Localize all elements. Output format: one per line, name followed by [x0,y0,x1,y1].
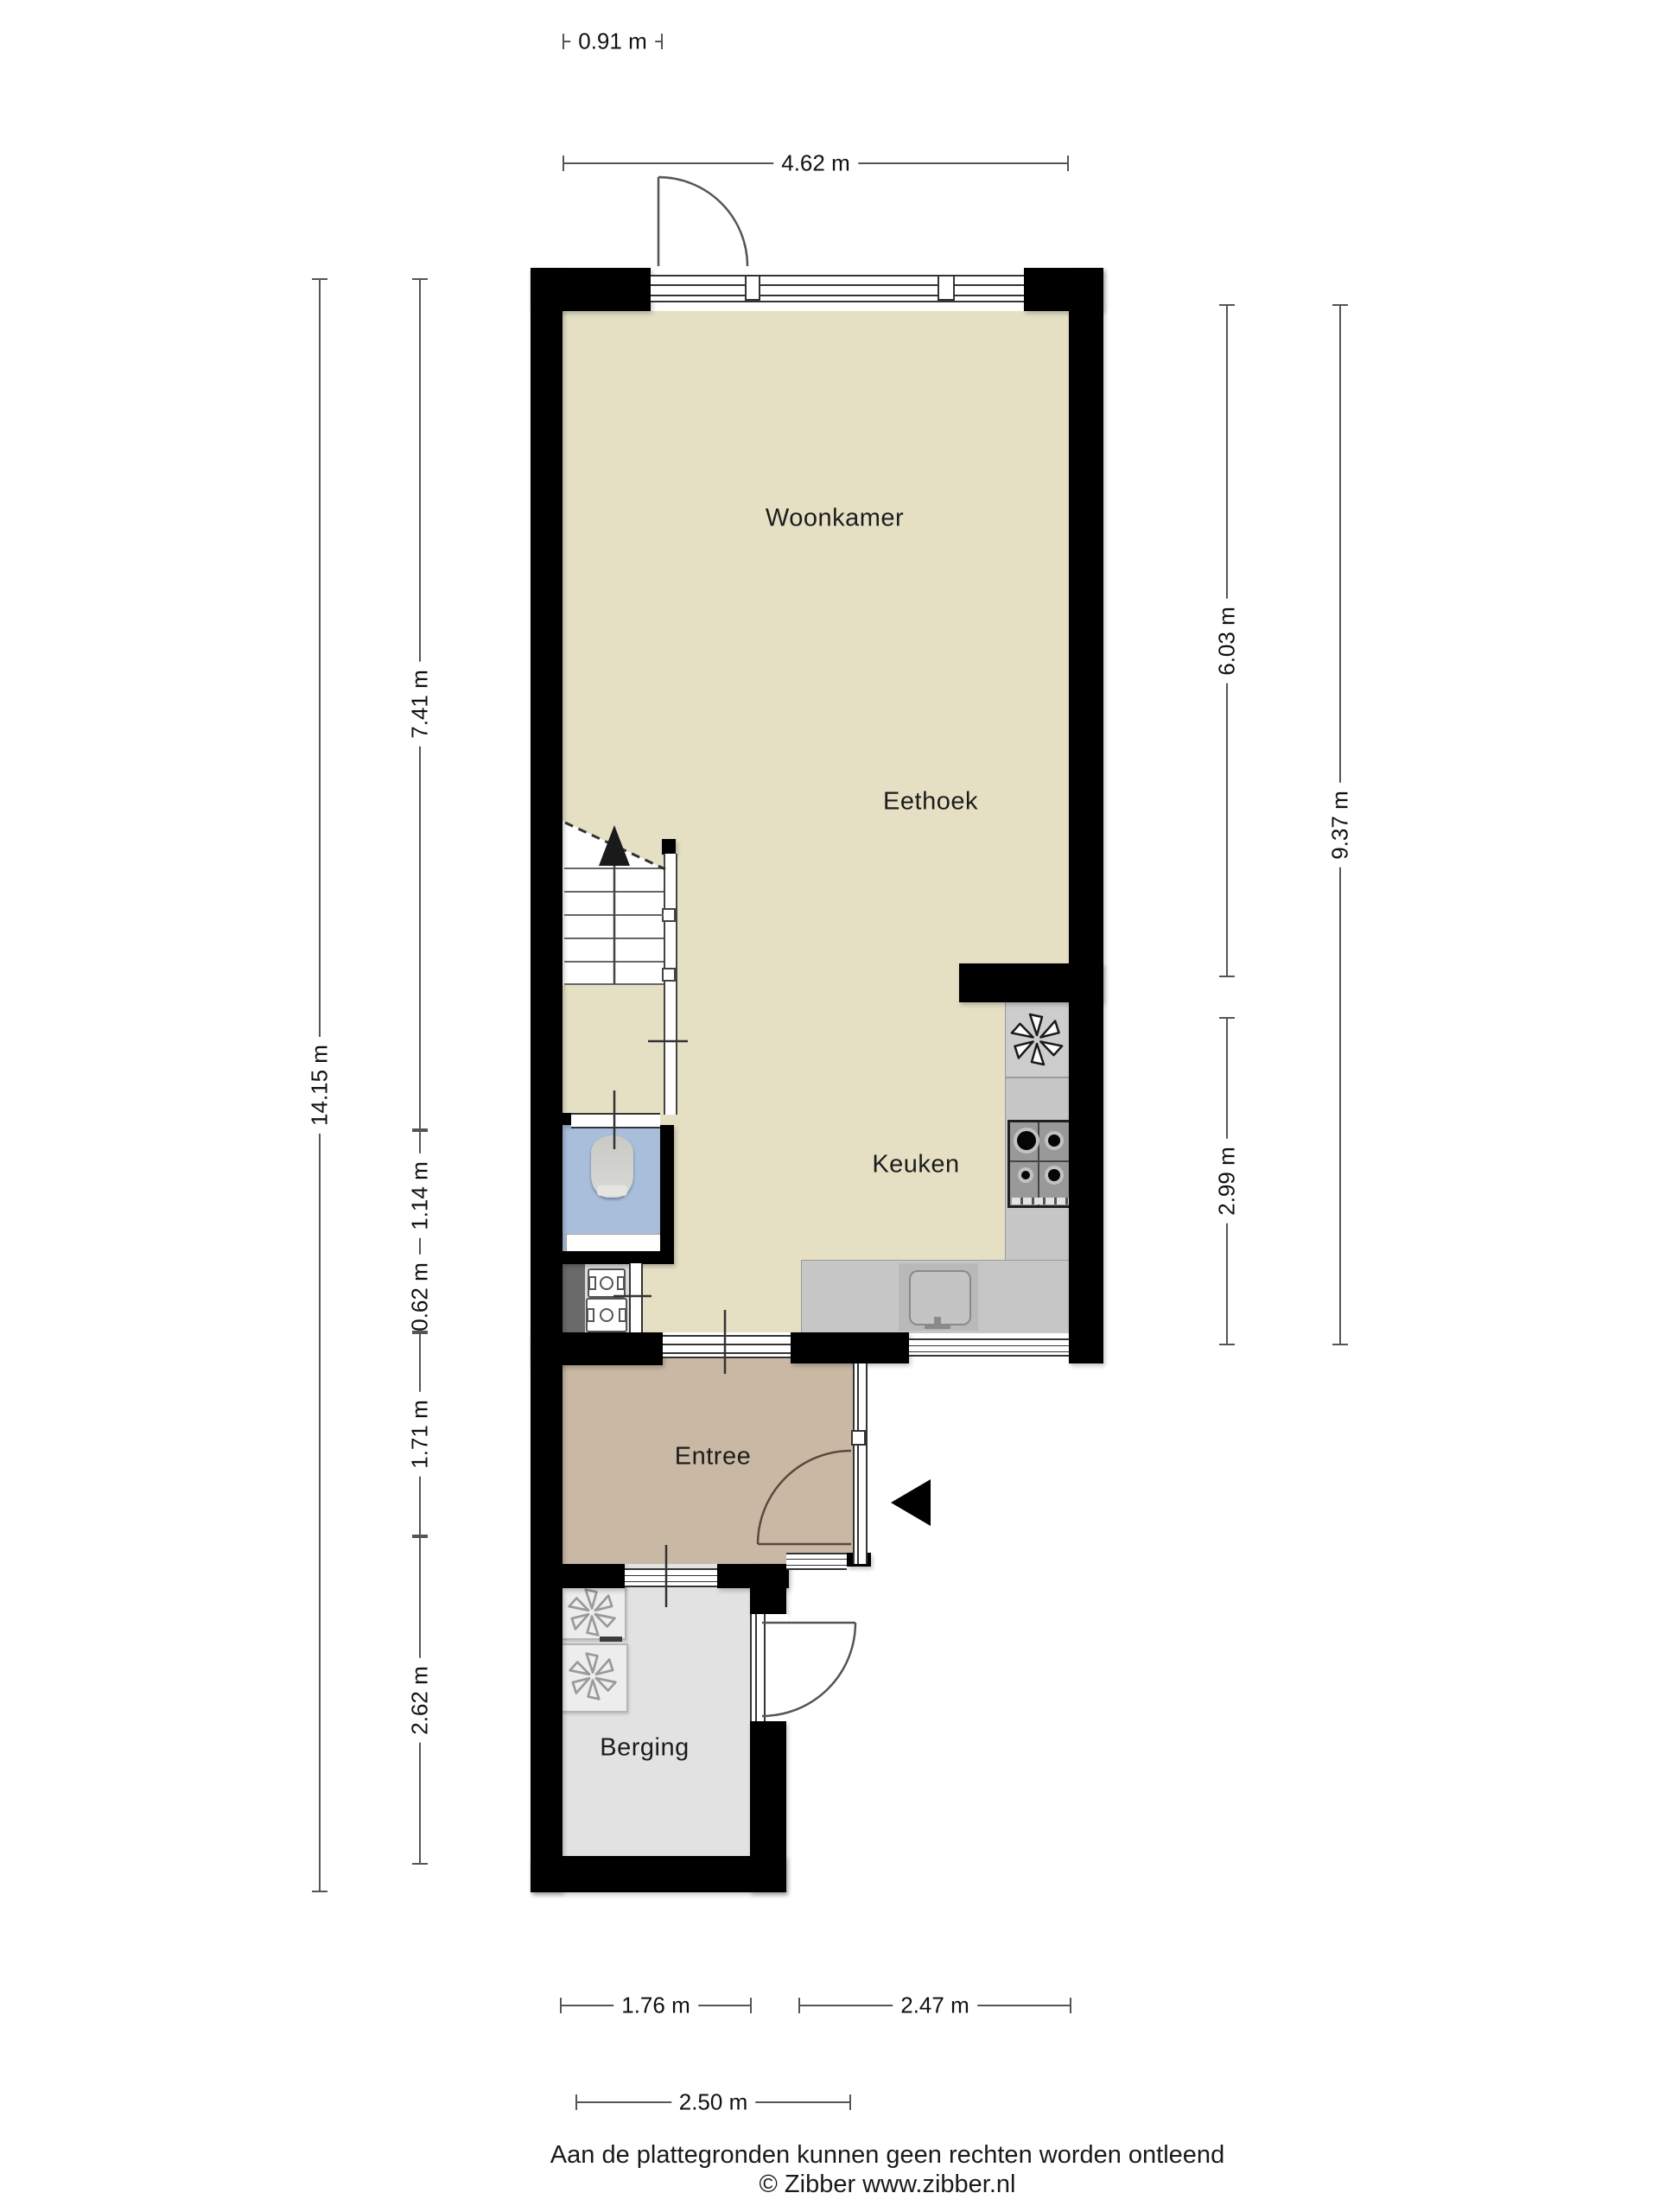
room-label-berging: Berging [600,1734,689,1763]
dim-top-width: 4.62 m [563,162,1069,164]
stairs-up-arrow-icon [599,825,630,866]
dim-label: 7.41 m [406,662,435,747]
door-swing-berging [762,1623,855,1716]
door-swing-entree [758,1451,851,1544]
dim-label: 9.37 m [1326,783,1355,868]
dim-bottom-berging: 1.76 m [560,2005,752,2006]
dim-left-toilet: 1.14 m [419,1130,421,1261]
room-label-entree: Entree [675,1443,751,1471]
room-label-keuken: Keuken [872,1151,959,1179]
dim-label: 0.62 m [406,1255,435,1339]
dim-left-entree: 1.71 m [419,1332,421,1536]
floorplan-canvas: Woonkamer Eethoek Keuken Entree Berging … [0,0,1659,2212]
entrance-arrow-icon [891,1479,931,1526]
opening-ticks [613,1041,725,1607]
footer-disclaimer: Aan de plattegronden kunnen geen rechten… [455,2141,1319,2170]
dim-label: 2.62 m [406,1658,435,1743]
dim-label: 2.99 m [1213,1139,1242,1224]
room-label-eethoek: Eethoek [883,788,978,817]
dim-bottom-total: 2.50 m [575,2101,851,2103]
dim-label: 1.71 m [406,1392,435,1477]
dim-right-total: 9.37 m [1339,304,1341,1345]
room-label-woonkamer: Woonkamer [766,505,904,533]
dim-right-living: 6.03 m [1226,304,1228,977]
dim-left-living: 7.41 m [419,278,421,1130]
dim-right-kitchen: 2.99 m [1226,1017,1228,1345]
dim-label: 1.14 m [406,1154,435,1238]
dim-label: 2.50 m [671,2088,756,2117]
footer-copyright: © Zibber www.zibber.nl [455,2171,1319,2199]
plan-linework [0,0,1659,2212]
dim-label: 0.91 m [570,28,655,56]
dim-label: 4.62 m [773,149,858,178]
dim-label: 14.15 m [306,1037,334,1134]
dim-label: 1.76 m [613,1992,698,2020]
dim-bottom-kitchen: 2.47 m [798,2005,1071,2006]
dim-label: 2.47 m [893,1992,977,2020]
dim-left-berging: 2.62 m [419,1536,421,1865]
dim-left-total: 14.15 m [319,278,321,1892]
door-swing-top [658,177,747,266]
dim-door-top: 0.91 m [563,41,663,42]
dim-left-meterkast: 0.62 m [419,1261,421,1332]
dim-label: 6.03 m [1213,599,1242,683]
